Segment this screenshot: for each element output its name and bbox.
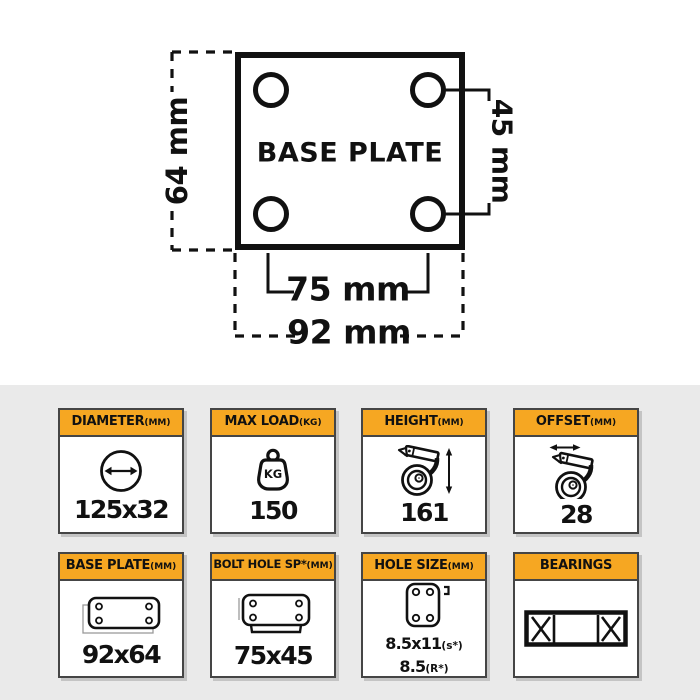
spec-card-base-plate-header: BASE PLATE(MM) (60, 554, 182, 581)
spec-card-bolt-hole-spacing: BOLT HOLE SP*(MM) 75x45 (210, 552, 336, 678)
offset-arrow (550, 444, 581, 450)
height-value: 161 (400, 500, 448, 525)
spec-card-height-label: HEIGHT (384, 415, 437, 428)
spec-card-offset-header: OFFSET(MM) (515, 410, 637, 437)
overall-height-label: 64 mm (160, 97, 194, 205)
spec-card-bolt-hole-spacing-header: BOLT HOLE SP*(MM) (212, 554, 334, 581)
bolt-hole-plate-icon (227, 590, 319, 640)
spec-card-grid: DIAMETER(MM) 125x32 MAX LOAD(KG) (0, 385, 700, 700)
bearing-icon (524, 610, 628, 648)
spec-card-offset-unit: (MM) (590, 419, 616, 428)
spec-card-bolt-hole-spacing-unit: (MM) (307, 562, 333, 571)
spec-card-base-plate: BASE PLATE(MM) 92x64 (58, 552, 184, 678)
spec-card-max-load-header: MAX LOAD(KG) (212, 410, 334, 437)
spec-card-max-load-unit: (KG) (299, 419, 322, 428)
diameter-value: 125x32 (74, 497, 168, 522)
mounting-hole-bottom-right (413, 199, 444, 230)
spec-card-base-plate-unit: (MM) (150, 563, 176, 572)
max-load-icon: KG (247, 447, 299, 495)
vertical-hole-spacing-label: 45 mm (486, 99, 519, 204)
kg-icon-text: KG (264, 467, 282, 481)
spec-card-diameter-label: DIAMETER (71, 415, 144, 428)
offset-value: 28 (560, 502, 592, 527)
spec-card-offset-label: OFFSET (536, 415, 590, 428)
dimension-diagram: BASE PLATE 64 mm 45 mm 75 mm 92 mm (0, 0, 700, 385)
caster-height-icon (394, 445, 454, 497)
mounting-hole-bottom-left (256, 199, 287, 230)
bolt-hole-spacing-value: 75x45 (234, 643, 312, 668)
spec-card-height: HEIGHT(MM) (361, 408, 487, 534)
spec-card-height-unit: (MM) (438, 419, 464, 428)
spec-card-bearings: BEARINGS (513, 552, 639, 678)
hole-size-value-slotted: 8.5x11(s*) (385, 634, 462, 654)
base-plate-icon (75, 591, 167, 639)
spec-card-bolt-hole-spacing-label: BOLT HOLE SP* (213, 559, 306, 571)
overall-width-label: 92 mm (287, 313, 411, 352)
caster-offset-icon (546, 443, 606, 499)
spec-card-hole-size-unit: (MM) (448, 563, 474, 572)
spec-card-hole-size-label: HOLE SIZE (374, 559, 447, 572)
hole-size-value-round: 8.5(R*) (399, 657, 448, 677)
spec-card-diameter-unit: (MM) (144, 419, 170, 428)
spec-card-max-load: MAX LOAD(KG) KG 150 (210, 408, 336, 534)
hole-size-plate-icon (394, 581, 454, 631)
spec-card-base-plate-label: BASE PLATE (66, 559, 150, 572)
base-plate-value: 92x64 (82, 642, 160, 667)
horizontal-hole-spacing-label: 75 mm (286, 270, 410, 309)
height-arrow (446, 448, 452, 494)
mounting-hole-top-right (413, 75, 444, 106)
spec-card-offset: OFFSET(MM) (513, 408, 639, 534)
spec-card-hole-size: HOLE SIZE(MM) 8.5x11(s*) (361, 552, 487, 678)
spec-card-max-load-label: MAX LOAD (224, 415, 299, 428)
spec-card-height-header: HEIGHT(MM) (363, 410, 485, 437)
spec-card-diameter-header: DIAMETER(MM) (60, 410, 182, 437)
diameter-icon (98, 448, 144, 494)
spec-card-diameter: DIAMETER(MM) 125x32 (58, 408, 184, 534)
spec-card-bearings-label: BEARINGS (540, 559, 612, 572)
spec-card-hole-size-header: HOLE SIZE(MM) (363, 554, 485, 581)
base-plate-label: BASE PLATE (257, 138, 443, 169)
mounting-hole-top-left (256, 75, 287, 106)
spec-card-bearings-header: BEARINGS (515, 554, 637, 581)
max-load-value: 150 (249, 498, 297, 523)
